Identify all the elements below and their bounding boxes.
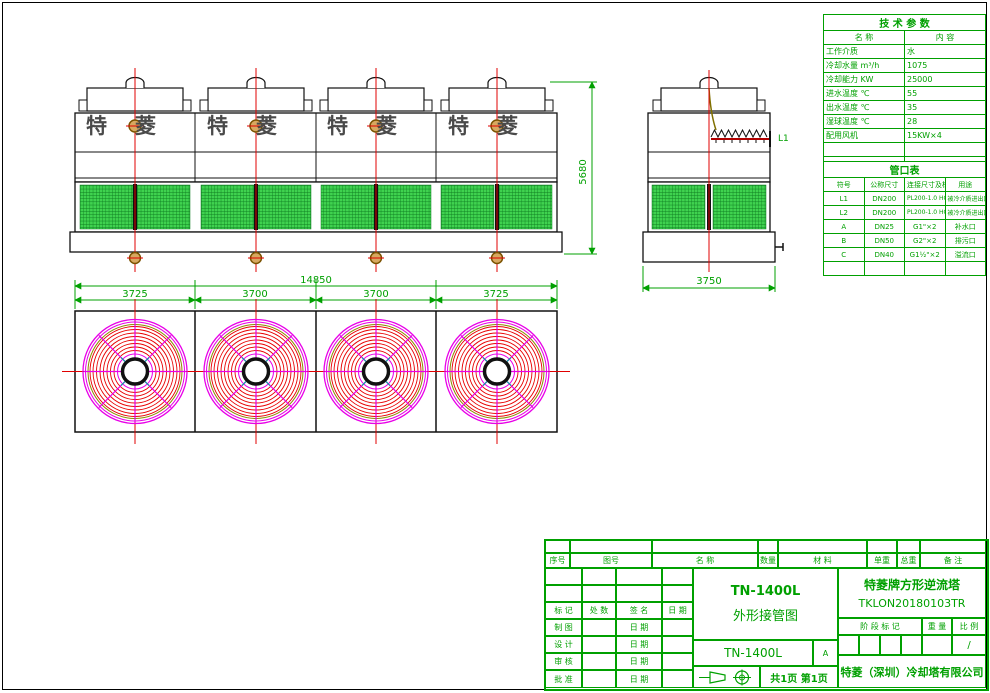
pipe-row-code: L1 [824, 192, 865, 206]
pipe-row-use: 被冷介质进出口 [945, 192, 986, 206]
tech-row-value: 28 [905, 115, 986, 129]
brand-logo-text: 特菱 [327, 114, 425, 138]
tech-params-table: 技 术 参 数 名 称 内 容 工作介质水 冷却水量 m³/h1075 冷却能力… [823, 14, 986, 171]
dim-text-14850: 14850 [300, 275, 332, 286]
brand-logo-text: 特菱 [207, 114, 305, 138]
dim-text-3725: 3725 [483, 289, 508, 300]
tech-row-value: 1075 [905, 59, 986, 73]
brand-logo-text: 特菱 [86, 114, 184, 138]
tech-col-name: 名 称 [824, 31, 905, 45]
plan-view: 14850 3725 3700 3700 3725 [62, 275, 570, 444]
tech-table-title: 技 术 参 数 [824, 15, 986, 31]
pipe-row-conn: G1"×2 [905, 220, 946, 234]
pipe-row-conn [905, 262, 946, 276]
pipe-col-code: 符号 [824, 178, 865, 192]
pipe-row-use: 补水口 [945, 220, 986, 234]
basin-outlet-fitting [775, 243, 783, 251]
tech-row-name: 冷却水量 m³/h [824, 59, 905, 73]
dim-text-3700: 3700 [363, 289, 388, 300]
tech-row-name: 出水温度 ℃ [824, 101, 905, 115]
pipe-row-size: DN50 [864, 234, 905, 248]
pipe-row-size: DN200 [864, 192, 905, 206]
pipe-col-use: 用途 [945, 178, 986, 192]
side-elevation-view: L1 3750 [643, 70, 789, 292]
pipe-port-table: 管口表 符号 公称尺寸 连接尺寸及标准 用途 L1 DN200 PL200-1.… [823, 161, 986, 276]
tech-row-name [824, 143, 905, 157]
pipe-row-code: C [824, 248, 865, 262]
pipe-row-code [824, 262, 865, 276]
pipe-row-use: 溢流口 [945, 248, 986, 262]
pipe-row-size [864, 262, 905, 276]
pipe-row-size: DN40 [864, 248, 905, 262]
dim-text-5680: 5680 [578, 159, 589, 184]
pipe-table-title: 管口表 [824, 162, 986, 178]
pipe-row-use [945, 262, 986, 276]
drawing-sheet: 特菱 特菱 特菱 特菱 L1 [0, 0, 990, 693]
tech-row-name: 进水温度 ℃ [824, 87, 905, 101]
tech-row-name: 工作介质 [824, 45, 905, 59]
tech-row-value: 25000 [905, 73, 986, 87]
pipe-row-code: A [824, 220, 865, 234]
tech-row-value: 55 [905, 87, 986, 101]
pipe-label-l1: L1 [778, 134, 789, 144]
pipe-row-conn: G1½"×2 [905, 248, 946, 262]
pipe-row-use: 被冷介质进出口 [945, 206, 986, 220]
pipe-row-size: DN25 [864, 220, 905, 234]
tech-row-value: 水 [905, 45, 986, 59]
pipe-row-use: 排污口 [945, 234, 986, 248]
pipe-row-conn: G2"×2 [905, 234, 946, 248]
title-block-border [544, 539, 989, 691]
dim-text-3700: 3700 [242, 289, 267, 300]
tech-row-name: 配用风机 [824, 129, 905, 143]
pipe-row-conn: PL200-1.0 HG20593 [905, 206, 946, 220]
pipe-row-conn: PL200-1.0 HG20593 [905, 192, 946, 206]
dim-text-3725: 3725 [122, 289, 147, 300]
dim-text-3750: 3750 [696, 276, 721, 287]
pipe-col-size: 公称尺寸 [864, 178, 905, 192]
tech-row-value: 35 [905, 101, 986, 115]
pipe-row-code: B [824, 234, 865, 248]
pipe-col-conn: 连接尺寸及标准 [905, 178, 946, 192]
pipe-row-size: DN200 [864, 206, 905, 220]
tech-row-name: 冷却能力 KW [824, 73, 905, 87]
tech-col-value: 内 容 [905, 31, 986, 45]
brand-logo-text: 特菱 [448, 114, 546, 138]
tech-row-name: 湿球温度 ℃ [824, 115, 905, 129]
front-elevation-view: 特菱 特菱 特菱 特菱 [70, 68, 562, 272]
pipe-row-code: L2 [824, 206, 865, 220]
tech-row-value [905, 143, 986, 157]
title-block: 序号 图号 名 称 数量 材 料 单重 总重 备 注 标 记 处 数 签 名 日… [545, 540, 986, 688]
tech-row-value: 15KW×4 [905, 129, 986, 143]
